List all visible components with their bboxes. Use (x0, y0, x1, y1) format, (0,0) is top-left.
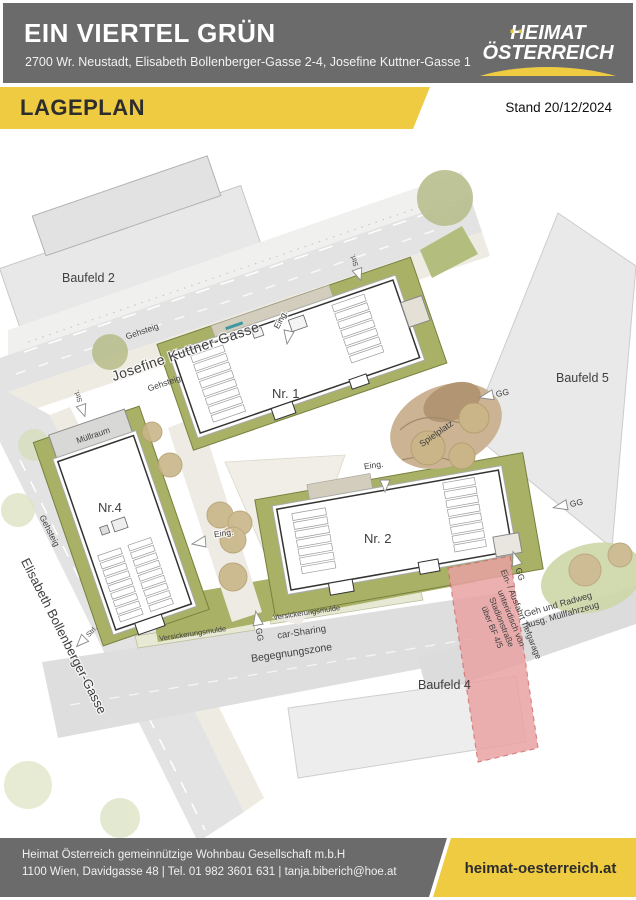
svg-text:Eing.: Eing. (363, 459, 384, 472)
project-address: 2700 Wr. Neustadt, Elisabeth Bollenberge… (25, 55, 471, 69)
logo-umlaut-dots: ·· (509, 19, 526, 45)
footer-website: heimat-oesterreich.at (448, 860, 633, 877)
baufeld2-label: Baufeld 2 (62, 271, 115, 285)
logo-line2: ÖSTERREICH (473, 43, 623, 63)
logo-line1: HEIMAT (473, 23, 623, 43)
heimat-oesterreich-logo: ·· HEIMAT ÖSTERREICH (473, 9, 623, 79)
marker-strasse-1: Strl. (71, 389, 89, 418)
building-nr2-label: Nr. 2 (364, 531, 391, 546)
plan-date: Stand 20/12/2024 (505, 100, 612, 115)
footer-contact-block: Heimat Österreich gemeinnützige Wohnbau … (22, 847, 397, 881)
site-plan: Ein- / Ausfahrt Tiefgarage unterirdisch … (0, 130, 636, 838)
marker-strasse-3: Strl. (73, 623, 99, 650)
building-nr4-label: Nr.4 (98, 500, 122, 515)
section-title: LAGEPLAN (20, 95, 145, 121)
footer-company: Heimat Österreich gemeinnützige Wohnbau … (22, 847, 397, 864)
baufeld5-label: Baufeld 5 (556, 371, 609, 385)
header-bar: EIN VIERTEL GRÜN 2700 Wr. Neustadt, Elis… (3, 3, 633, 83)
baufeld4-label: Baufeld 4 (418, 678, 471, 692)
building-nr1-label: Nr. 1 (272, 386, 299, 401)
footer-contact: 1100 Wien, Davidgasse 48 | Tel. 01 982 3… (22, 864, 397, 881)
page-title: EIN VIERTEL GRÜN (24, 18, 276, 49)
logo-swoosh-icon (478, 64, 618, 78)
